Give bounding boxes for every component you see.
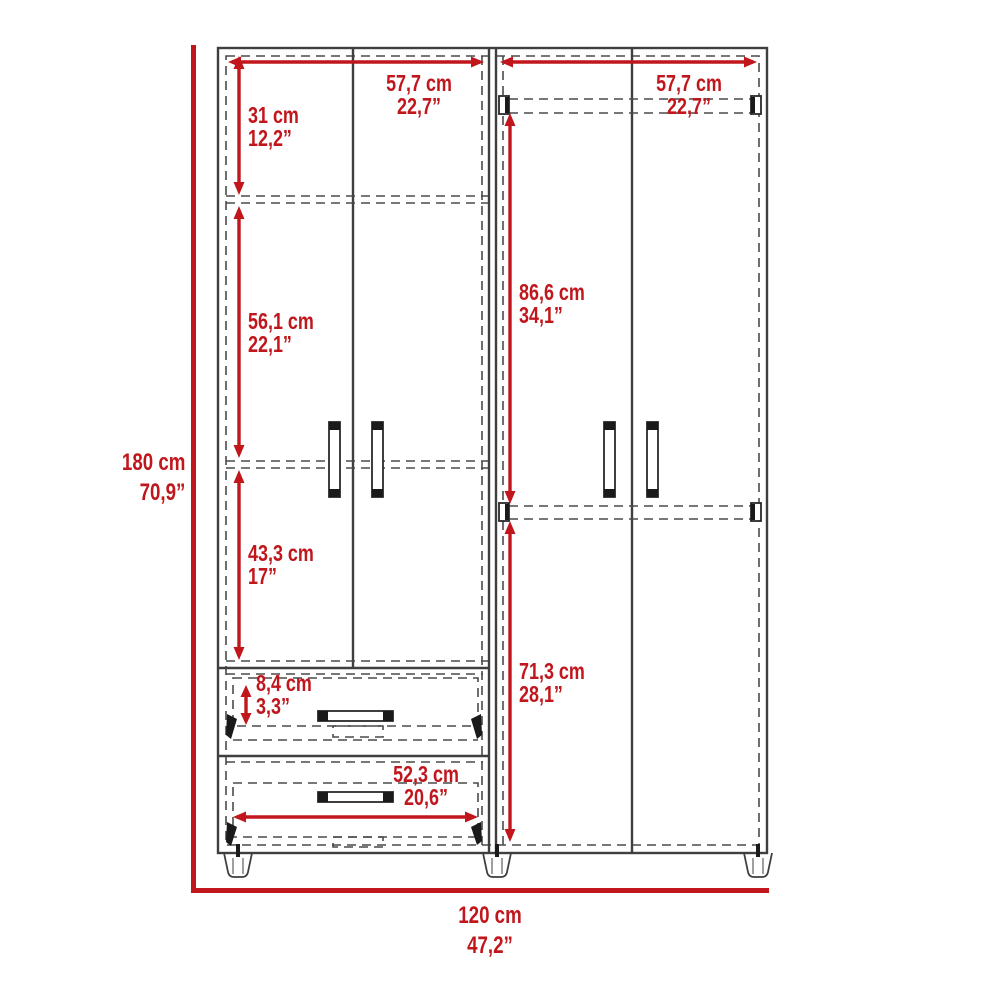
- label-drawer-width: 52,3 cm 20,6”: [364, 763, 489, 809]
- label-lower-compartment-inch: 17”: [248, 565, 314, 588]
- arrow-drawer-face-height: [241, 685, 252, 725]
- drawer-1-glide-left: [226, 714, 237, 739]
- label-middle-compartment-cm: 56,1 cm: [248, 310, 314, 333]
- label-right-lower-section-cm: 71,3 cm: [519, 660, 585, 683]
- label-total-width-cm: 120 cm: [428, 901, 553, 931]
- label-top-compartment-cm: 31 cm: [248, 104, 299, 127]
- label-right-section-width: 57,7 cm 22,7”: [627, 72, 752, 118]
- label-lower-compartment: 43,3 cm 17”: [248, 542, 314, 588]
- label-total-width: 120 cm 47,2”: [428, 901, 553, 961]
- arrow-drawer-width: [233, 812, 478, 823]
- foot-left: [224, 844, 252, 877]
- label-right-lower-section: 71,3 cm 28,1”: [519, 660, 585, 706]
- label-top-compartment-inch: 12,2”: [248, 127, 299, 150]
- label-right-section-width-inch: 22,7”: [627, 95, 752, 118]
- arrow-right-upper-section: [505, 113, 516, 504]
- height-axis-line: [191, 45, 196, 893]
- arrow-top-compartment: [234, 56, 245, 195]
- foot-center: [483, 844, 511, 877]
- label-right-section-width-cm: 57,7 cm: [627, 72, 752, 95]
- left-shelf-middle: [226, 461, 488, 468]
- drawer-1-handle: [318, 711, 393, 721]
- label-drawer-width-inch: 20,6”: [364, 786, 489, 809]
- label-left-section-width: 57,7 cm 22,7”: [357, 72, 482, 118]
- label-right-lower-section-inch: 28,1”: [519, 683, 585, 706]
- label-right-upper-section-cm: 86,6 cm: [519, 281, 585, 304]
- label-left-section-width-inch: 22,7”: [357, 95, 482, 118]
- label-total-height: 180 cm 70,9”: [122, 448, 185, 508]
- left-shelf-top: [226, 196, 488, 203]
- label-right-upper-section: 86,6 cm 34,1”: [519, 281, 585, 327]
- hanging-rod-lower: [499, 503, 761, 521]
- label-left-section-width-cm: 57,7 cm: [357, 72, 482, 95]
- arrow-right-section-width: [500, 57, 757, 68]
- label-total-height-cm: 180 cm: [122, 448, 185, 478]
- arrow-middle-compartment: [234, 206, 245, 458]
- label-drawer-face-height-inch: 3,3”: [256, 695, 312, 718]
- arrow-right-lower-section: [505, 521, 516, 842]
- label-middle-compartment: 56,1 cm 22,1”: [248, 310, 314, 356]
- label-right-upper-section-inch: 34,1”: [519, 304, 585, 327]
- drawer-2-glide-right: [471, 822, 482, 845]
- arrow-left-section-width: [228, 57, 484, 68]
- label-drawer-face-height: 8,4 cm 3,3”: [256, 672, 312, 718]
- arrow-lower-compartment: [234, 470, 245, 660]
- label-lower-compartment-cm: 43,3 cm: [248, 542, 314, 565]
- label-middle-compartment-inch: 22,1”: [248, 333, 314, 356]
- drawer-2-glide-left: [226, 822, 237, 846]
- cabinet-outline: [218, 48, 767, 853]
- width-axis-line: [191, 888, 769, 893]
- label-drawer-face-height-cm: 8,4 cm: [256, 672, 312, 695]
- label-total-height-inch: 70,9”: [122, 478, 185, 508]
- label-drawer-width-cm: 52,3 cm: [364, 763, 489, 786]
- label-total-width-inch: 47,2”: [428, 931, 553, 961]
- left-door-handles: [329, 422, 383, 497]
- label-top-compartment: 31 cm 12,2”: [248, 104, 299, 150]
- dimension-diagram: 180 cm 70,9” 120 cm 47,2” 57,7 cm 22,7” …: [0, 0, 1000, 1000]
- drawer-1-glide-right: [471, 714, 482, 739]
